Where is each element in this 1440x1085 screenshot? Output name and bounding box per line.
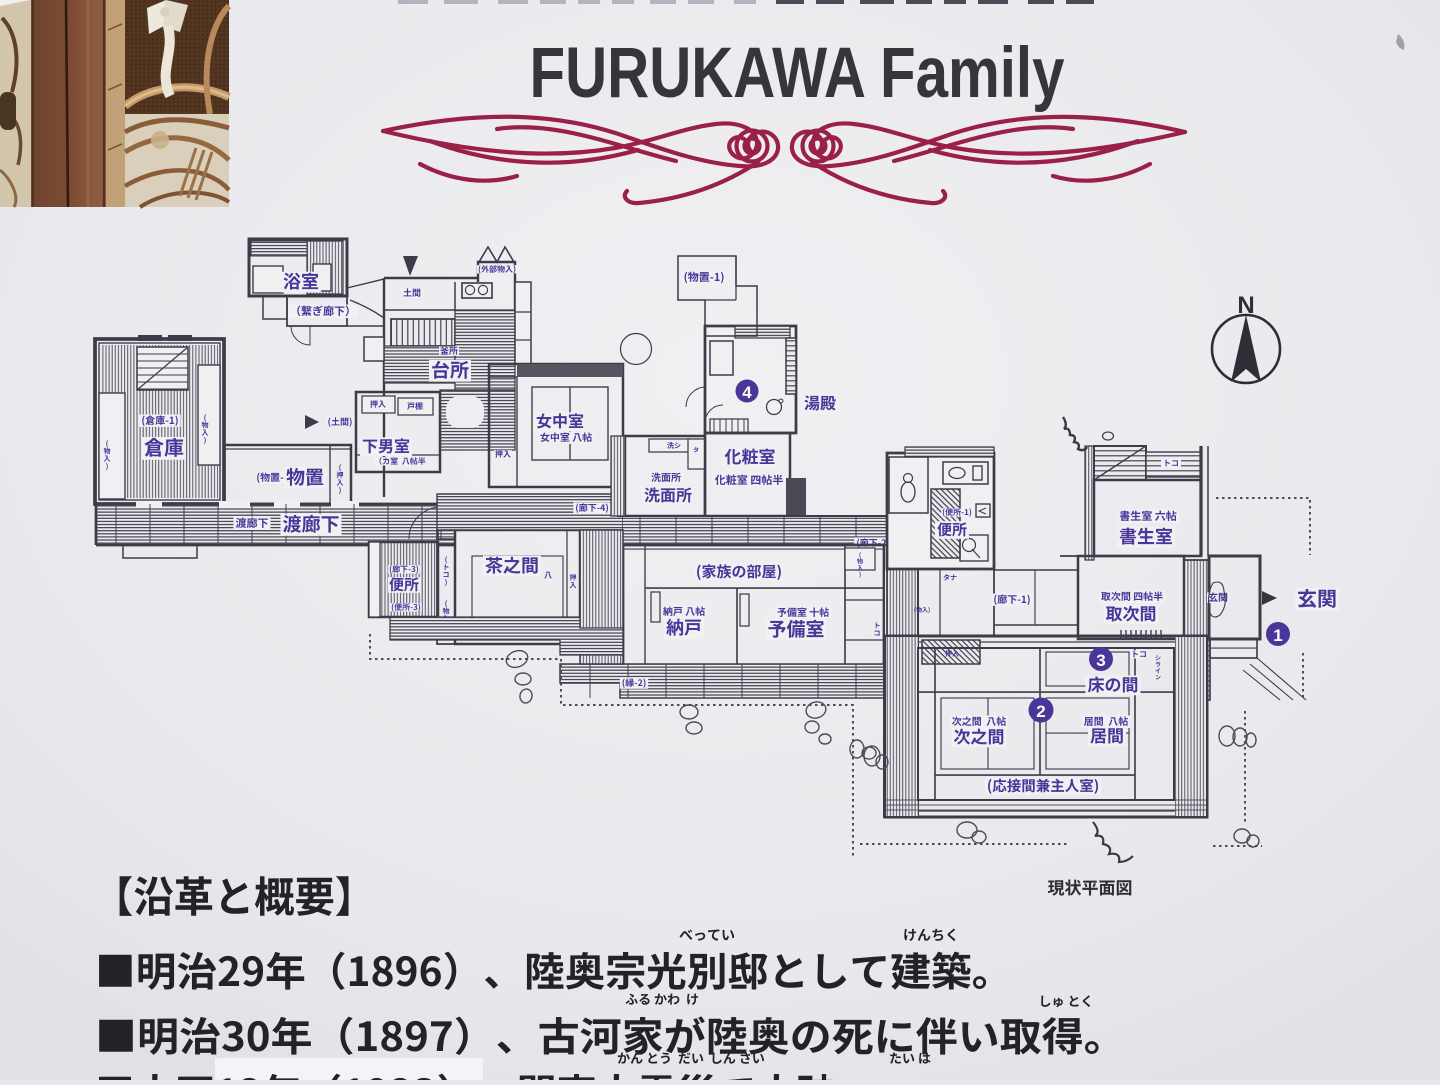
svg-text:1: 1 (1273, 626, 1282, 645)
svg-text:4: 4 (742, 383, 752, 402)
svg-text:FURUKAWA Family: FURUKAWA Family (530, 34, 1065, 113)
svg-text:2: 2 (1036, 702, 1045, 721)
svg-text:3: 3 (1096, 651, 1105, 670)
